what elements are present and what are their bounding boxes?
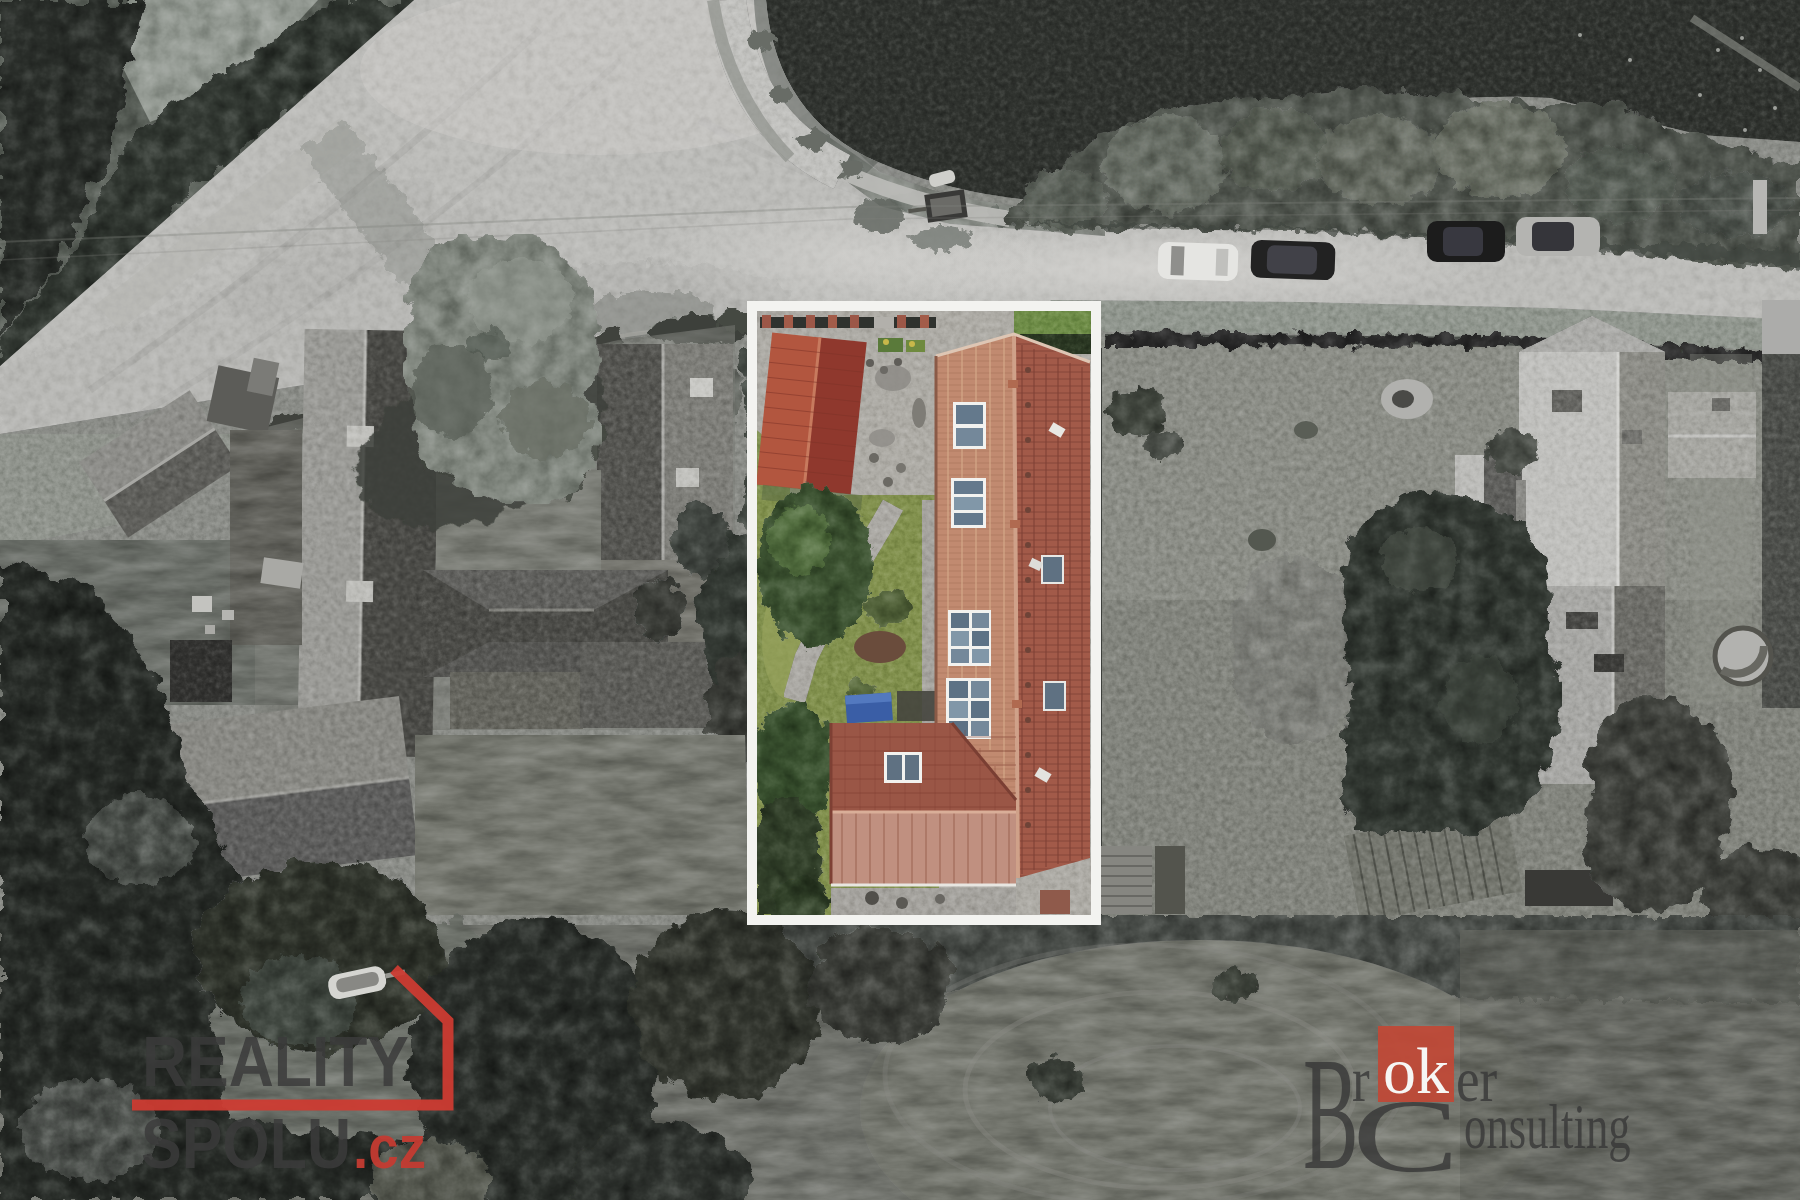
svg-text:B: B [1303, 1025, 1358, 1200]
svg-text:onsulting: onsulting [1464, 1091, 1631, 1162]
svg-text:ok: ok [1383, 1034, 1449, 1107]
svg-text:REALITY: REALITY [142, 1023, 409, 1101]
svg-text:.cz: .cz [353, 1112, 426, 1181]
svg-text:SPOLU: SPOLU [141, 1105, 351, 1183]
